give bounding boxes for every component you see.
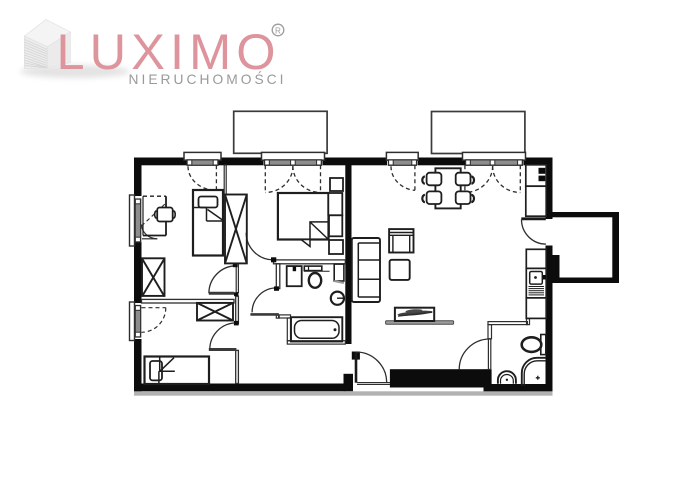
- svg-text:NIERUCHOMOŚCI: NIERUCHOMOŚCI: [129, 70, 284, 87]
- svg-text:R: R: [275, 27, 281, 36]
